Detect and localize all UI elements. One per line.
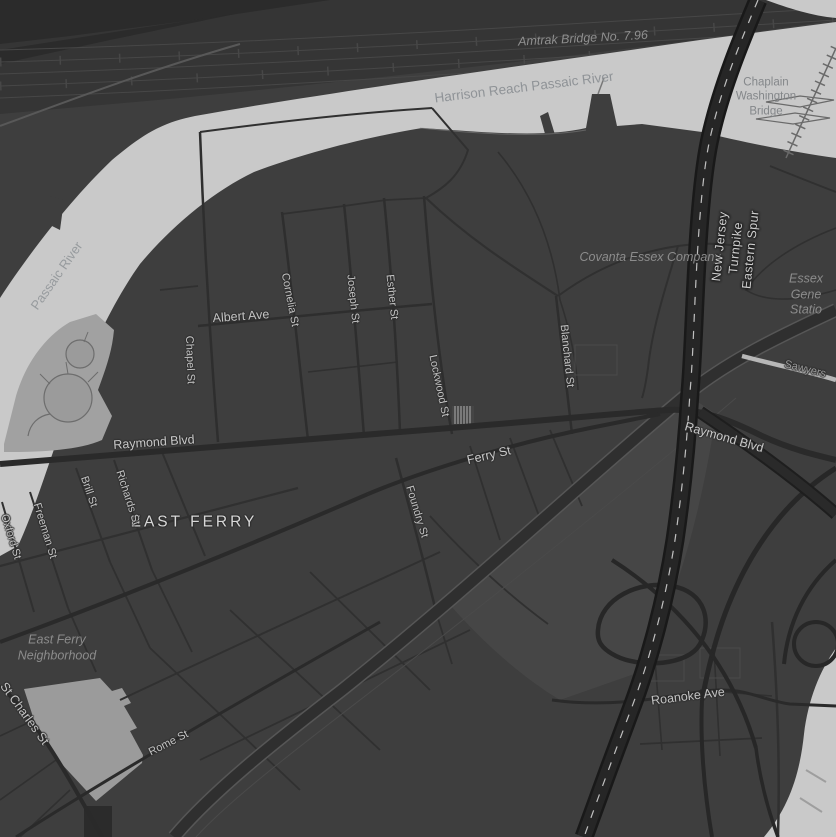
map-geometry (0, 0, 836, 837)
bridge-label-chaplain-washington: Chaplain Washington Bridge (736, 75, 796, 118)
map-canvas[interactable]: Amtrak Bridge No. 7.96 Harrison Reach Pa… (0, 0, 836, 837)
street-label-chapel-st: Chapel St (181, 336, 196, 385)
striped-building (452, 406, 474, 424)
poi-label-covanta: Covanta Essex Company (579, 250, 720, 266)
area-label-east-ferry-neighborhood: East Ferry Neighborhood (18, 632, 97, 663)
neighborhood-label-east-ferry: EAST FERRY (131, 512, 258, 531)
poi-label-essex-generating-station: Essex Gene Statio (789, 272, 823, 319)
